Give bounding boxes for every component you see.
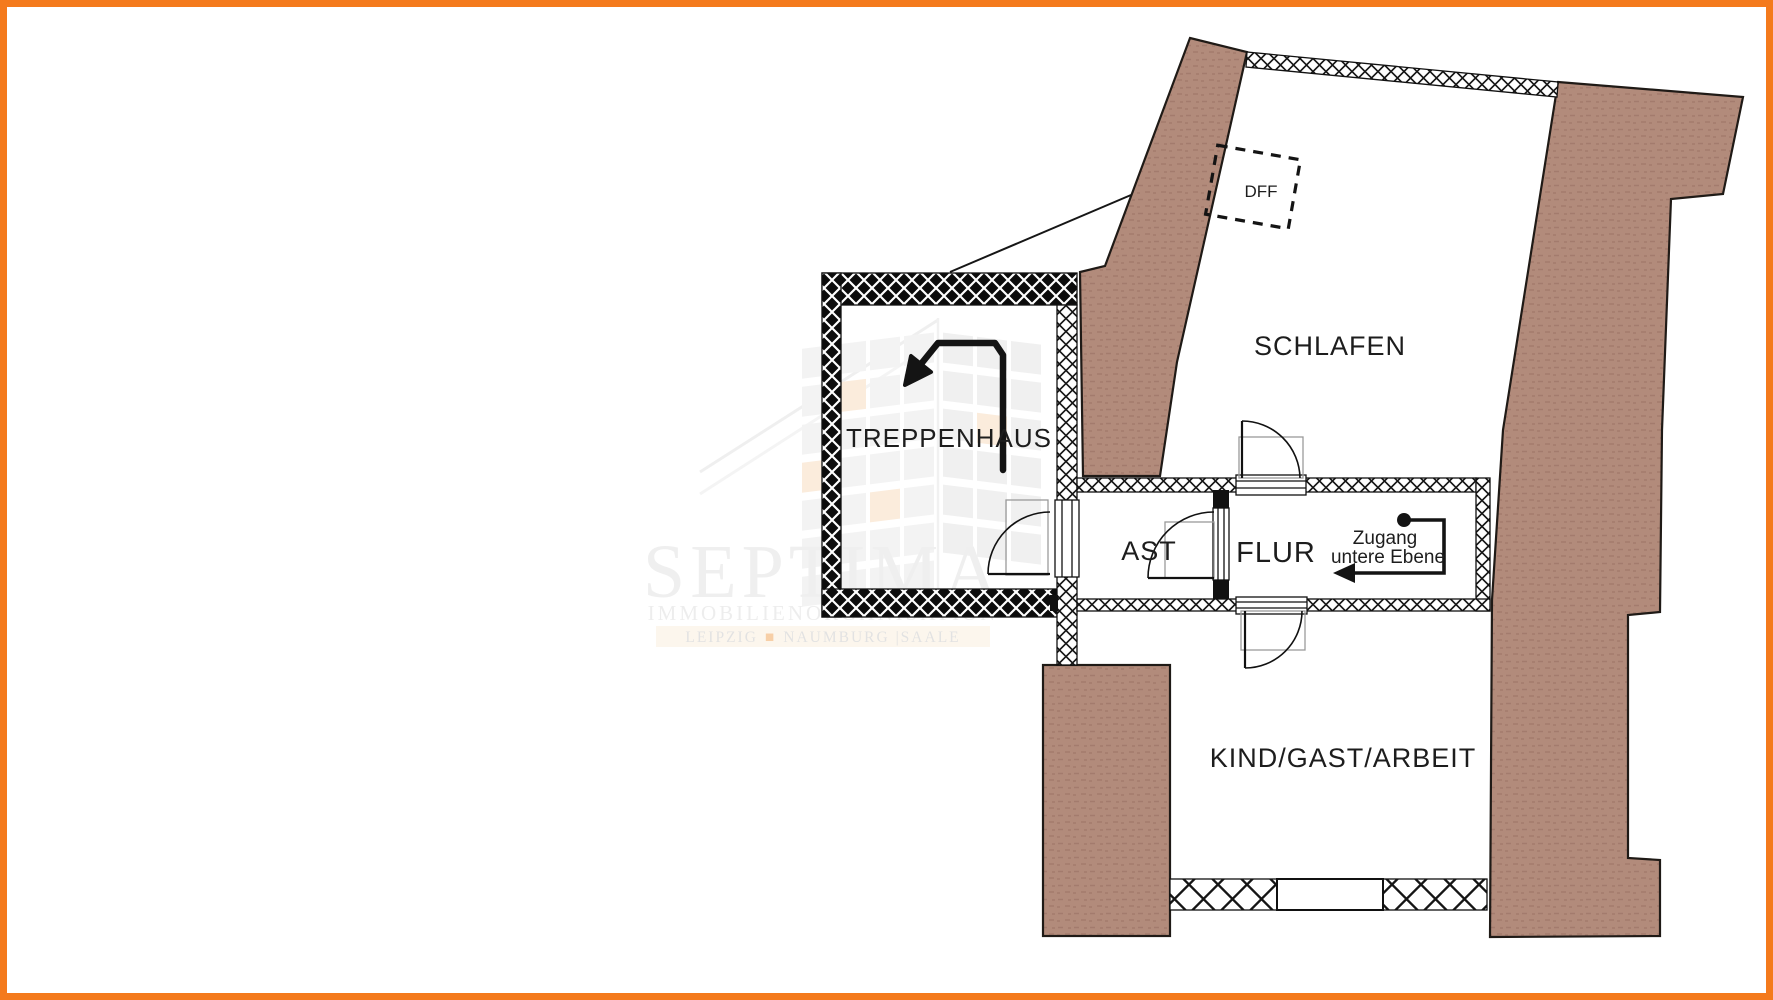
door-opening-ast-flur <box>1213 508 1229 580</box>
floorplan-page: SEPTIMA IMMOBILIENORGANISATION LEIPZIG■N… <box>0 0 1773 1000</box>
wall-flur-right <box>1476 478 1490 611</box>
dff-label: DFF <box>1244 182 1277 201</box>
room-label-kind-gast-arbeit: KIND/GAST/ARBEIT <box>1210 743 1477 773</box>
wall-schlafen-top <box>1246 52 1558 97</box>
door-opening-treppenhaus <box>1055 500 1079 577</box>
room-label-ast: AST <box>1121 536 1177 566</box>
roof-mass-right <box>1490 82 1743 937</box>
wall-treppenhaus-top <box>822 273 1077 305</box>
zugang-label-line1: Zugang <box>1353 528 1417 549</box>
wall-treppenhaus-left <box>822 273 841 617</box>
window-kind <box>1277 879 1383 910</box>
room-label-schlafen: SCHLAFEN <box>1254 331 1406 361</box>
boundary-line <box>950 195 1131 272</box>
zugang-label-line2: untere Ebene <box>1331 547 1445 568</box>
room-label-treppenhaus: TREPPENHAUS <box>846 423 1052 453</box>
room-label-flur: FLUR <box>1236 537 1316 569</box>
roof-column-bottom <box>1043 665 1170 936</box>
floor-plan-canvas: SEPTIMA IMMOBILIENORGANISATION LEIPZIG■N… <box>0 0 1773 1000</box>
roof-wedge-left <box>1080 38 1247 476</box>
watermark-cities-text: LEIPZIG■NAUMBURG |SAALE <box>685 629 960 646</box>
wall-treppenhaus-bottom <box>822 589 1057 617</box>
wall-vertical-shared <box>1057 305 1077 665</box>
